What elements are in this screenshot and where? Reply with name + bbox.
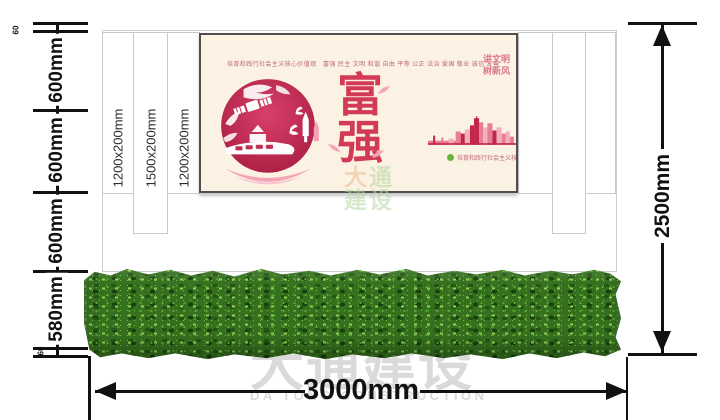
green-dot-icon [447,154,454,161]
dim-label-2500: 2500mm [649,149,677,243]
watermark-center: 大 通 建 设 [344,166,394,212]
dim-label-3000: 3000mm [303,374,419,407]
wm-char: 建 [344,189,369,212]
bottom-dim-line [95,390,305,393]
dim-tick [33,30,88,33]
dim-tick [33,191,88,194]
post-strip-right-2 [552,32,586,234]
poster-corner-slogan: 讲文明 树新风 [483,54,510,77]
poster-footer-note: 培育和践行社会主义核心价值观 公益广告 [447,153,518,162]
dim-label-600-1: 600mm [46,34,68,106]
arrow-down-icon [653,331,671,352]
main-char-1: 富 [332,73,388,120]
dim-label-600-3: 600mm [46,195,68,267]
dim-extension [33,356,90,358]
papercut-circle-illustration [213,75,325,187]
post-strip-right-1 [518,32,553,194]
post-strip-left-2: 1500x200mm [133,32,168,234]
leaf-accent-icon [327,143,341,153]
wm-char: 大 [344,166,369,189]
dim-label-600-2: 600mm [46,114,68,186]
post-size-label: 1500x200mm [143,109,158,188]
poster-top-slogan: 培育和践行社会主义核心价值观 富强 民主 文明 和谐 自由 平等 公正 法治 爱… [227,59,487,68]
dim-label-60-bottom: 60 [37,347,46,356]
bottom-dim-line [420,390,627,393]
footer-note-text: 培育和践行社会主义核心价值观 公益广告 [457,153,518,162]
skyline-svg [428,116,516,147]
post-strip-left-3: 1200x200mm [167,32,200,194]
corner-line-1: 讲文明 [483,54,510,66]
dim-label-60-top: 60 [12,26,21,35]
post-size-label: 1200x200mm [176,109,191,188]
corner-line-2: 树新风 [483,66,510,78]
post-strip-left-1: 1200x200mm [102,32,134,194]
arrow-right-icon [606,382,627,400]
hedge-plants [84,266,621,361]
wm-char: 设 [369,189,394,212]
leaf-accent-icon [377,85,391,95]
dim-label-580: 580mm [46,273,68,345]
dim-tick [33,22,88,25]
arrow-left-icon [95,382,116,400]
post-strip-right-3 [585,32,616,194]
billboard-spec-drawing: 大通建设 DA TONG CONSTRUCTION 1200x200mm 150… [0,0,720,420]
wm-char: 通 [369,166,394,189]
dim-tick [33,109,88,112]
leaf-accent-icon [371,149,385,159]
arrow-up-icon [653,25,671,46]
dim-extension [88,356,91,420]
post-size-label: 1200x200mm [111,109,126,188]
